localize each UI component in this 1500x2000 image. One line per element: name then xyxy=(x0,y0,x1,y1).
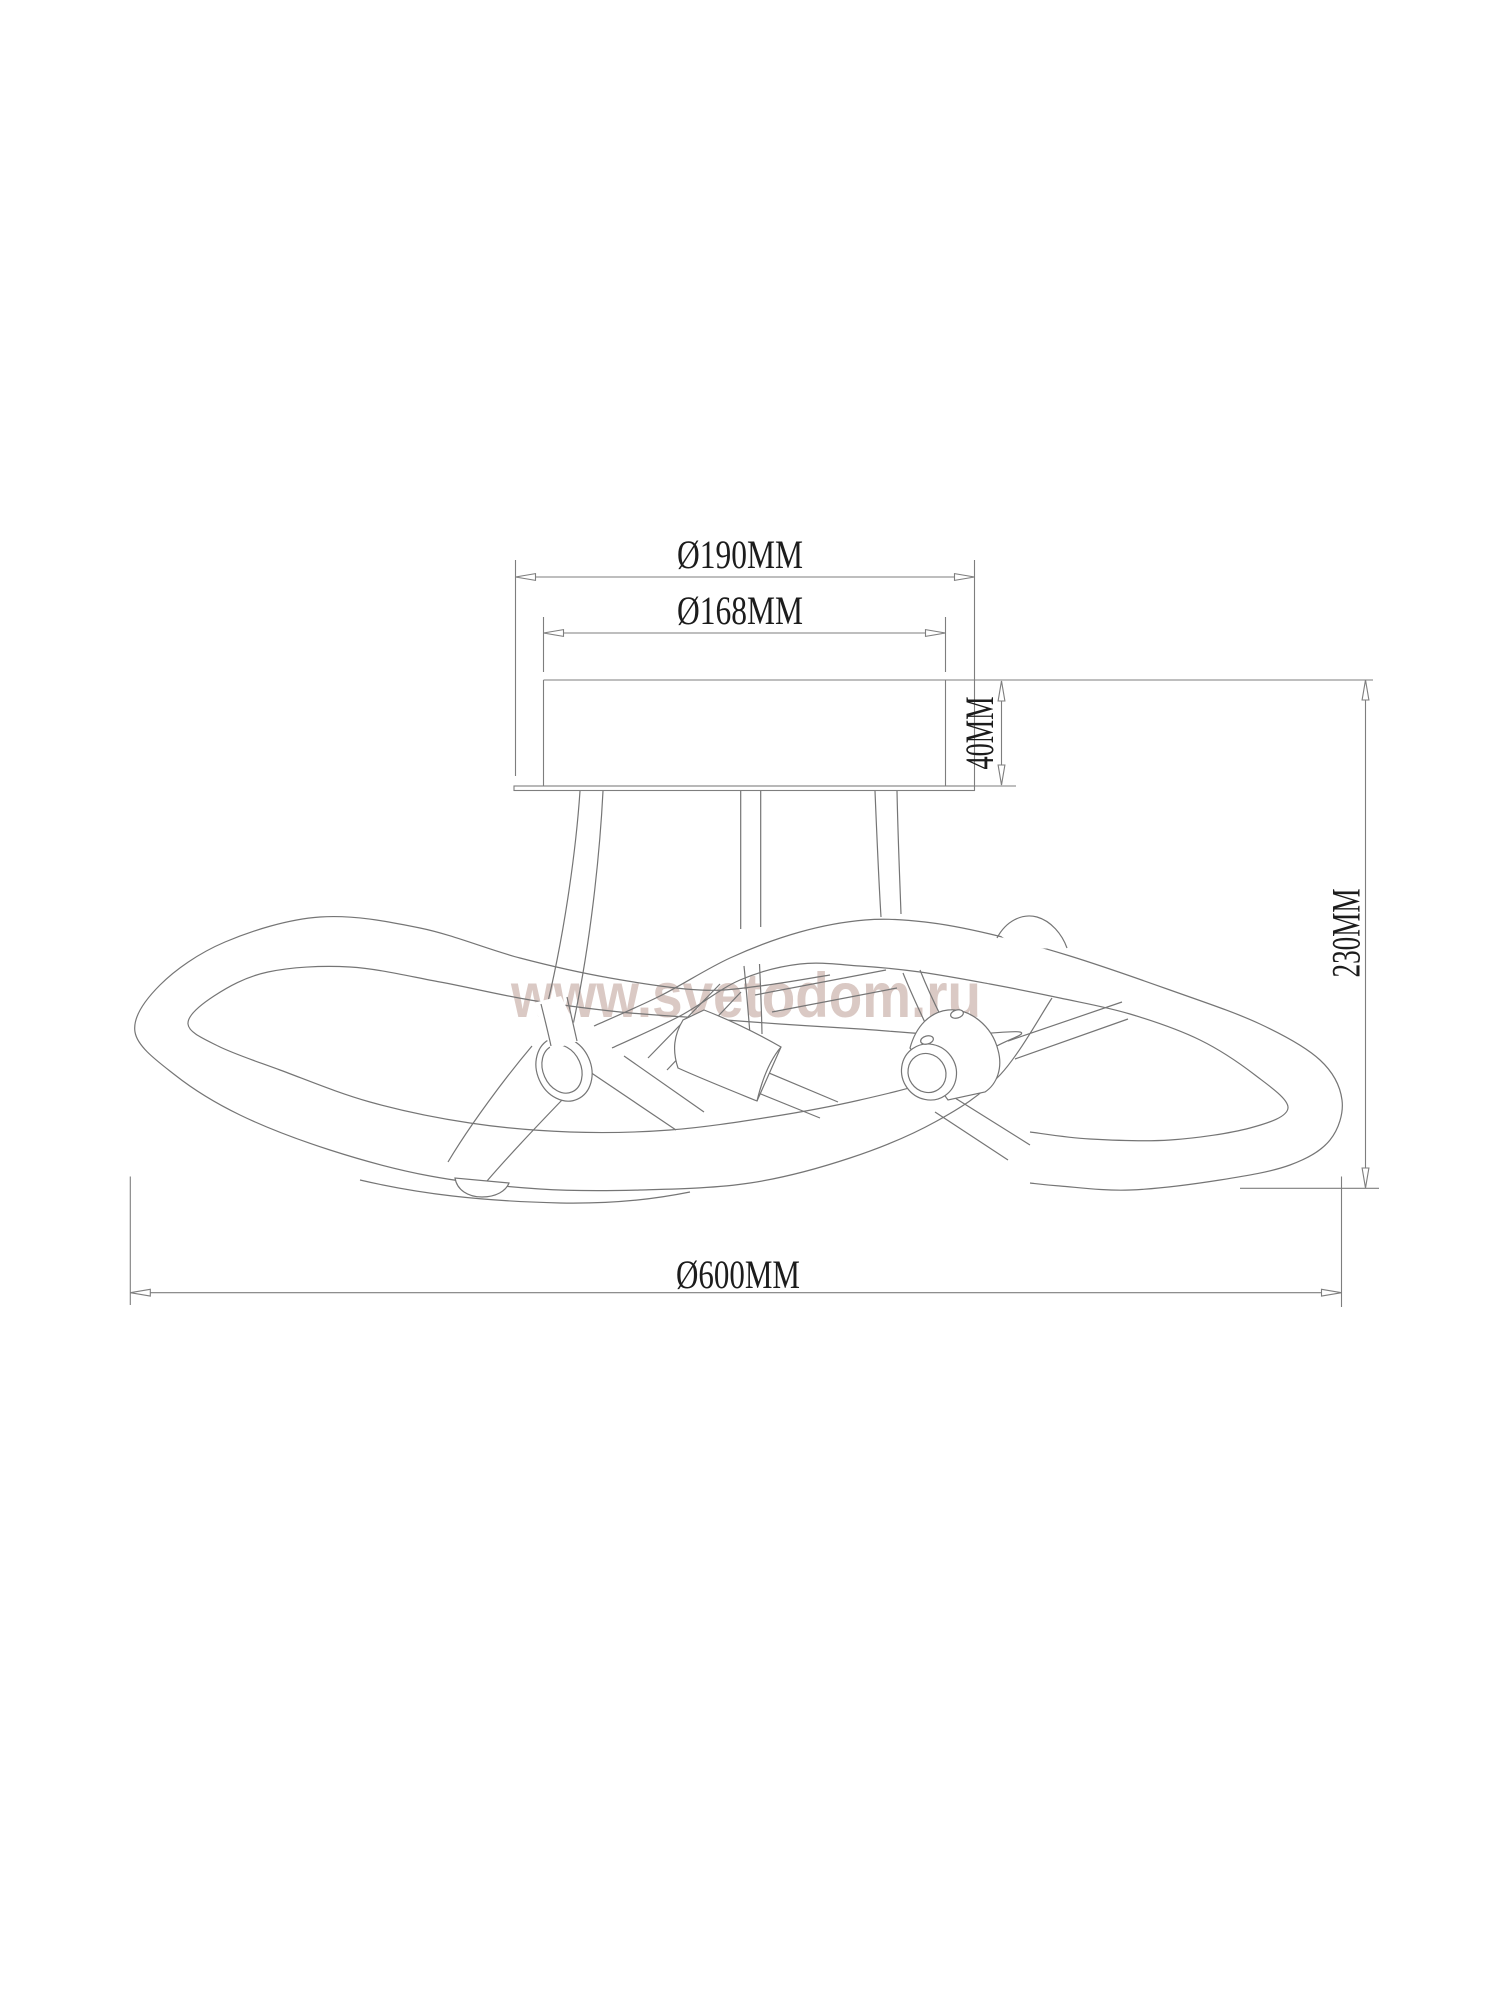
svg-text:40MM: 40MM xyxy=(957,697,1002,770)
svg-text:Ø190MM: Ø190MM xyxy=(677,532,803,577)
svg-text:Ø168MM: Ø168MM xyxy=(677,588,803,633)
svg-text:www.svetodom.ru: www.svetodom.ru xyxy=(510,961,981,1031)
svg-text:230MM: 230MM xyxy=(1324,889,1369,978)
svg-text:Ø600MM: Ø600MM xyxy=(676,1252,800,1297)
